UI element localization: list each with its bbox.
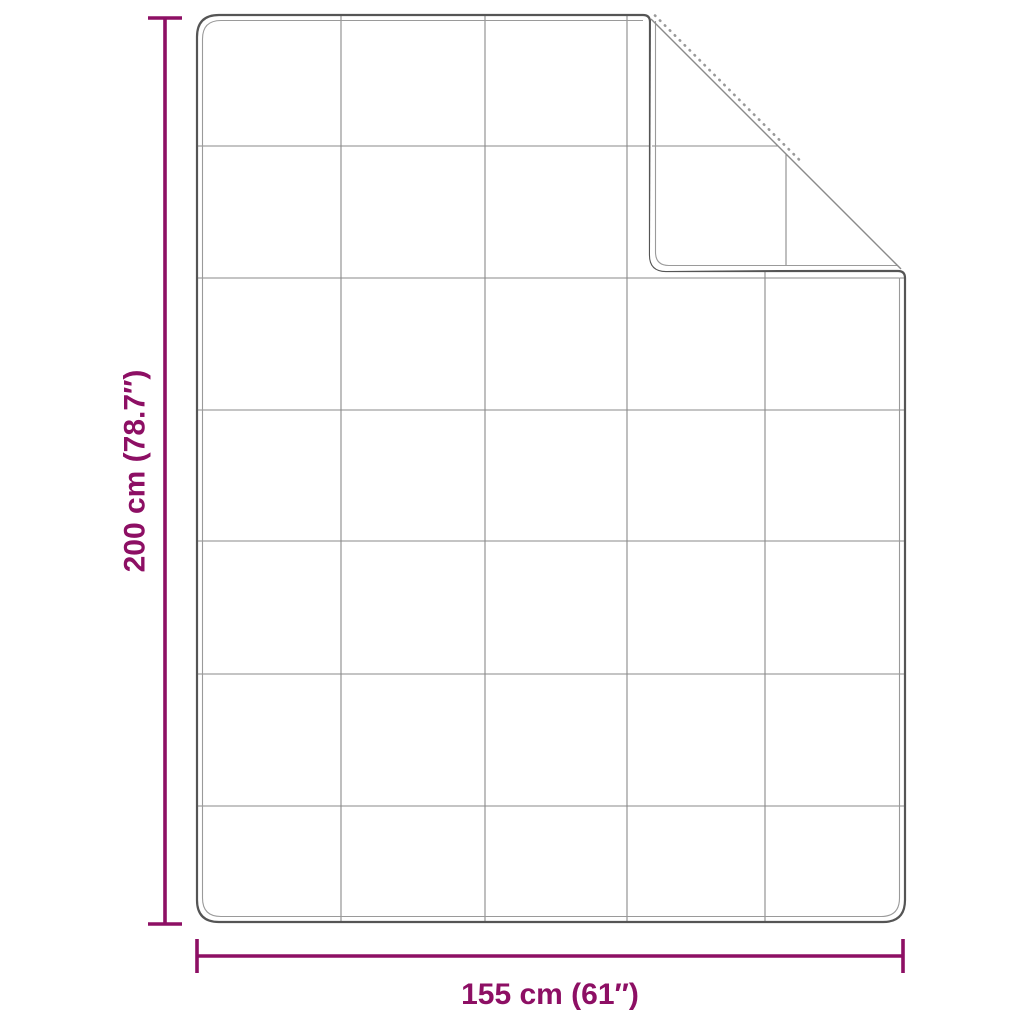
vertical-dimension-label: 200 cm (78.7″)	[119, 370, 152, 573]
folded-corner	[650, 16, 901, 272]
blanket-dimension-drawing: 200 cm (78.7″) 155 cm (61″)	[0, 0, 1024, 1024]
dimension-diagram: 200 cm (78.7″) 155 cm (61″)	[0, 0, 1024, 1024]
horizontal-dimension-label: 155 cm (61″)	[461, 978, 639, 1011]
blanket-body	[197, 15, 905, 922]
vertical-dimension: 200 cm (78.7″)	[119, 18, 183, 924]
horizontal-dimension: 155 cm (61″)	[197, 939, 903, 1011]
blanket	[197, 15, 905, 922]
flap-surface	[650, 19, 901, 271]
